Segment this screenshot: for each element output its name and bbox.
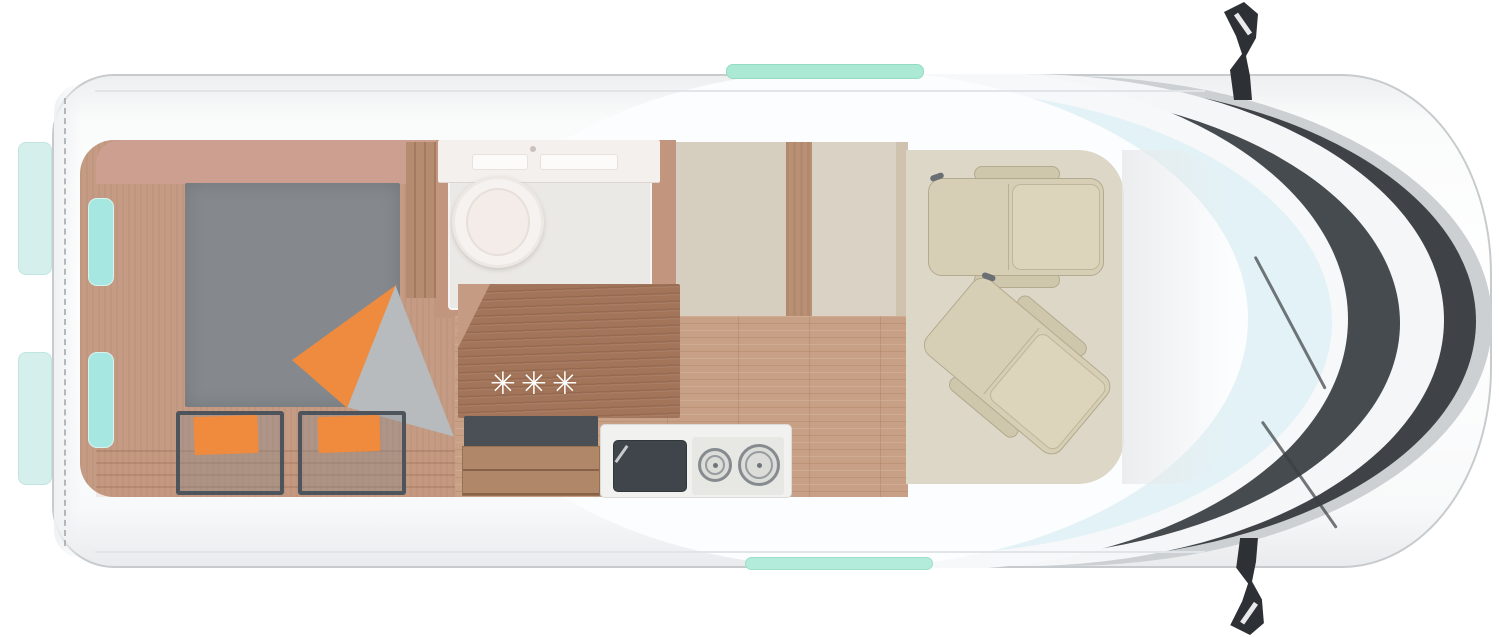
skylight-strip-top [726,64,924,79]
overhead-cabinet-band [96,140,458,184]
hob-burner-center [757,463,762,468]
seat-divider [1008,184,1009,270]
bathroom-sink-tray-1 [472,154,528,170]
hob-burner-center [713,463,718,468]
corridor-wall-panel-1 [676,142,786,318]
hob-burner-right [738,444,780,486]
hob-burner-left [698,448,732,482]
side-mirror-bottom [1206,538,1302,637]
burner-star-icon: ✳ [552,368,578,400]
bathroom-sink-tray-2 [540,154,618,170]
skylight-strip-bottom [745,557,933,570]
toilet-lid [466,188,530,256]
hob-burner-ring [705,455,725,475]
bench-cushion-left [193,415,258,455]
seat-cushion [1012,184,1100,270]
burner-star-icon: ✳ [521,368,547,400]
window-rear-left-1 [88,198,114,286]
bathroom-faucet [530,146,536,152]
campervan-floorplan: ✳ ✳ ✳ [0,0,1499,637]
bench-cushion-right [317,415,380,453]
cab-seat-passenger [928,166,1108,290]
kitchen-worktop-dark [464,416,598,448]
roof-seam-top [95,90,1205,92]
hob-burner-ring [745,451,773,479]
corridor-wall-panel-2 [812,142,896,316]
side-mirror-top [1200,0,1296,100]
kitchen-drawers [462,446,600,496]
window-rear-left-2 [88,352,114,448]
burner-stars: ✳ ✳ ✳ [490,368,578,400]
rear-window-pane-top [18,142,52,275]
rear-window-pane-bottom [18,352,52,485]
roof-seam-bottom [95,551,1205,553]
dashboard-shade [1122,150,1230,484]
burner-star-icon: ✳ [490,368,516,400]
corridor-wall-wood-strip [786,142,812,318]
